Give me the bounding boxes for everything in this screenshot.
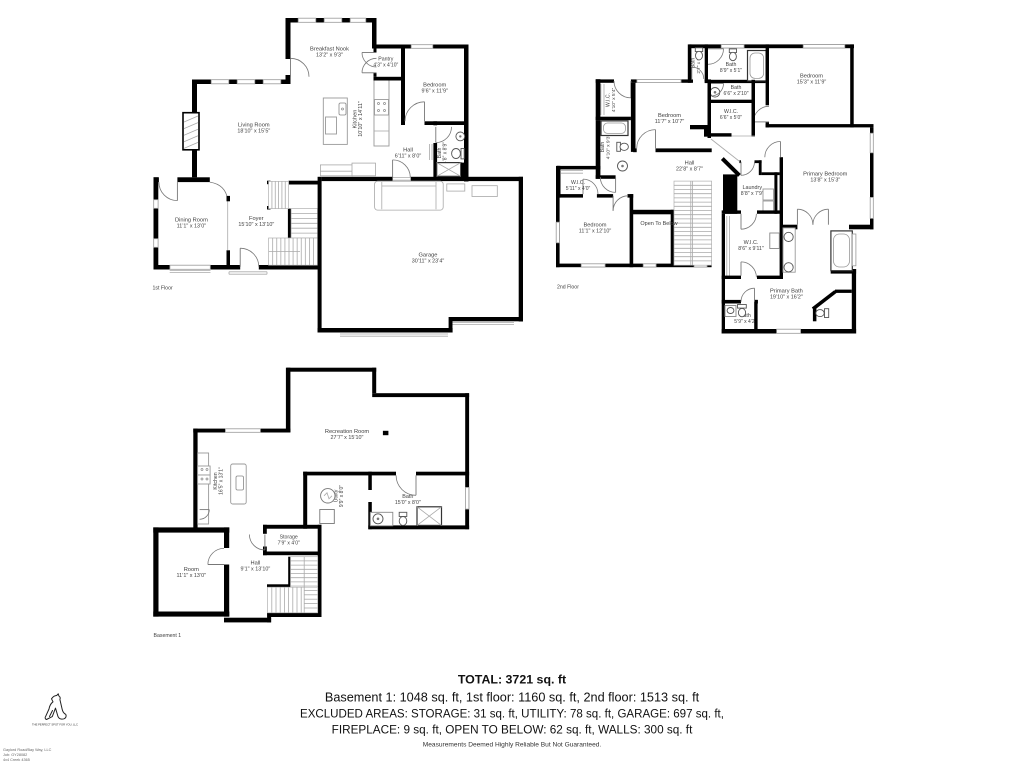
svg-text:Basement 1: 1048 sq. ft, 1st f: Basement 1: 1048 sq. ft, 1st floor: 1160… [325,691,700,705]
svg-text:11’1" x 12’10": 11’1" x 12’10" [579,228,612,234]
svg-text:13’8" x 15’3": 13’8" x 15’3" [810,178,840,184]
svg-text:THE PERFECT SPOT FOR YOU, LLC: THE PERFECT SPOT FOR YOU, LLC [32,723,78,727]
svg-text:5’11" x 4’0": 5’11" x 4’0" [566,186,591,192]
svg-text:1st Floor: 1st Floor [153,285,173,291]
svg-text:Gaylord Road/Bay Way, LLC: Gaylord Road/Bay Way, LLC [3,748,52,752]
svg-text:9’6" x 11’9": 9’6" x 11’9" [421,88,448,94]
svg-text:15’0" x 8’0": 15’0" x 8’0" [395,500,421,506]
svg-text:9’9" x 8’0": 9’9" x 8’0" [339,485,345,507]
svg-text:22’8" x 8’7": 22’8" x 8’7" [676,167,703,173]
svg-text:FIREPLACE: 9 sq. ft, OPEN TO B: FIREPLACE: 9 sq. ft, OPEN TO BELOW: 62 s… [332,724,693,737]
svg-text:4’10" x 9’3": 4’10" x 9’3" [605,135,611,160]
svg-text:10’10" x 14’11": 10’10" x 14’11" [358,101,364,137]
svg-text:W.I.C.: W.I.C. [606,93,612,107]
svg-text:11’1" x 13’0": 11’1" x 13’0" [177,223,207,229]
svg-text:4’8" x 8’9": 4’8" x 8’9" [443,142,449,164]
svg-text:19’10" x 16’2": 19’10" x 16’2" [770,295,803,301]
svg-text:5’9" x 4’2": 5’9" x 4’2" [734,319,756,325]
svg-text:9’1" x 13’10": 9’1" x 13’10" [240,566,270,572]
svg-text:Bath: Bath [600,142,606,153]
svg-text:Measurements Deemed Highly Rel: Measurements Deemed Highly Reliable But … [423,742,602,749]
svg-text:11’1" x 13’0": 11’1" x 13’0" [177,573,207,579]
svg-text:15’3" x 11’9": 15’3" x 11’9" [797,80,827,86]
svg-text:8’6" x 9’11": 8’6" x 9’11" [738,246,764,252]
svg-text:6’11" x 8’0": 6’11" x 8’0" [395,153,422,159]
svg-text:8’8" x 7’9": 8’8" x 7’9" [741,191,764,197]
svg-text:7’9" x 4’0": 7’9" x 4’0" [278,541,300,547]
svg-text:6’6" x 2’10": 6’6" x 2’10" [724,91,749,97]
svg-text:Job: GY28082: Job: GY28082 [3,753,27,757]
svg-text:4x4 Creek 4365: 4x4 Creek 4365 [3,758,30,762]
svg-text:8’9" x 5’1": 8’9" x 5’1" [720,68,742,74]
svg-text:2nd Floor: 2nd Floor [557,285,579,291]
svg-text:TOTAL: 3721 sq. ft: TOTAL: 3721 sq. ft [458,673,566,687]
svg-text:4’3" x 4’10": 4’3" x 4’10" [373,63,398,69]
svg-text:11’7" x 10’7": 11’7" x 10’7" [655,119,685,125]
svg-text:6’6" x 5’0": 6’6" x 5’0" [720,115,742,121]
svg-text:16’5" x 13’1": 16’5" x 13’1" [219,467,225,495]
svg-text:EXCLUDED AREAS: STORAGE: 31 sq: EXCLUDED AREAS: STORAGE: 31 sq. ft, UTIL… [300,709,724,721]
svg-text:Basement 1: Basement 1 [154,633,182,639]
svg-text:27’7" x 15’10": 27’7" x 15’10" [331,435,364,441]
svg-text:4’10" x 5’4": 4’10" x 5’4" [611,88,617,113]
svg-text:30’11" x 23’4": 30’11" x 23’4" [412,258,445,264]
svg-text:18’10" x 15’5": 18’10" x 15’5" [237,129,270,135]
svg-text:15’10" x 13’10": 15’10" x 13’10" [238,222,274,228]
svg-text:Open To Below: Open To Below [640,221,677,227]
svg-text:Bath: Bath [691,58,697,69]
svg-text:13’2" x 9’3": 13’2" x 9’3" [316,53,343,59]
